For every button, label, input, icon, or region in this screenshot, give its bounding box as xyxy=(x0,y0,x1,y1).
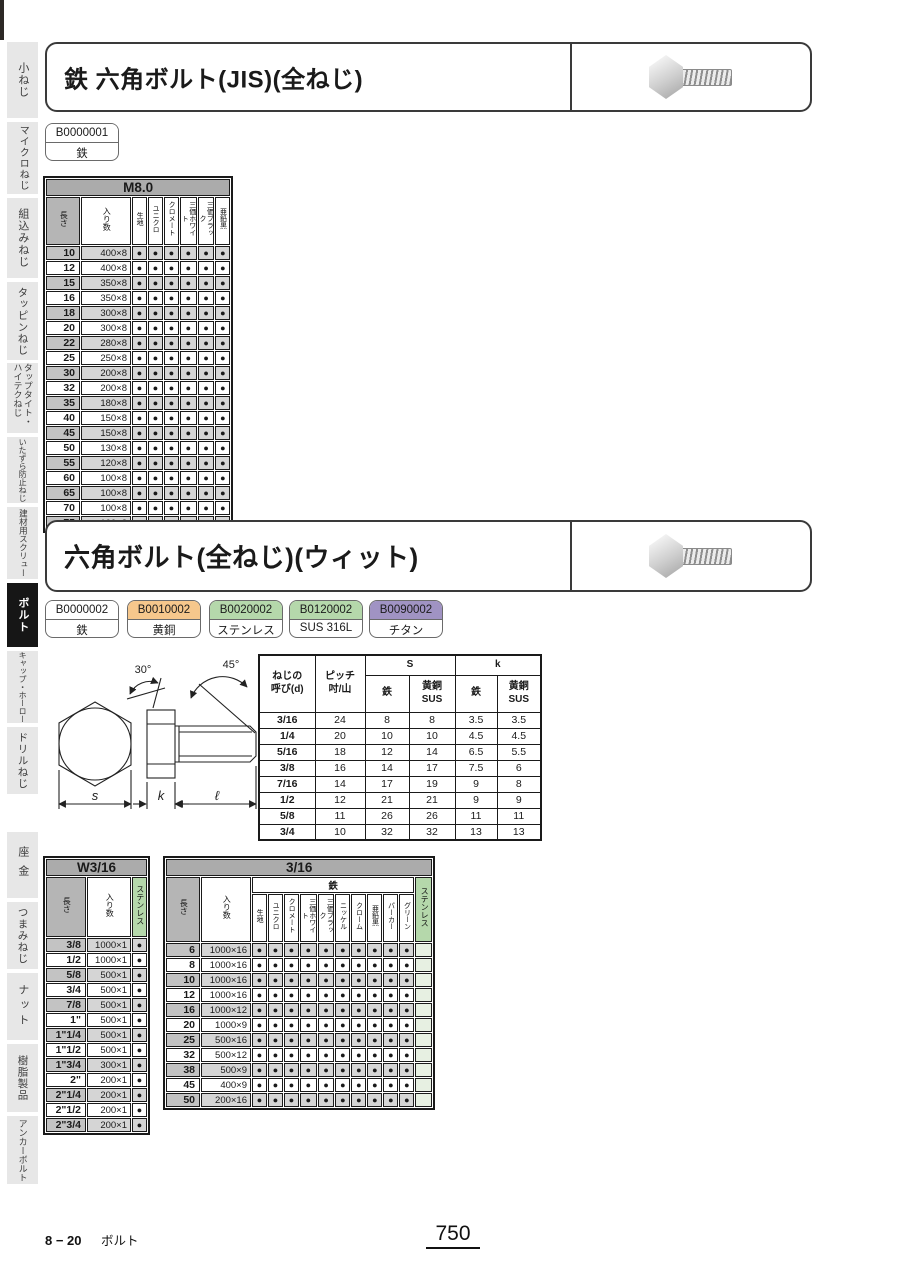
section1-header-box: 鉄 六角ボルト(JIS)(全ねじ) xyxy=(45,42,812,112)
product-code-tag: B0120002 SUS 316L xyxy=(289,600,363,638)
length-cell: 20 xyxy=(166,1018,200,1032)
finish-dot-cell: ● xyxy=(399,943,414,957)
table-row: 2"1/4200×1● xyxy=(46,1088,147,1102)
sus-dot-cell xyxy=(415,1093,432,1107)
table-row: 32200×8●●●●●● xyxy=(46,381,230,395)
section-title: 六角ボルト(全ねじ)(ウィット) xyxy=(64,538,419,575)
bolt-head-image xyxy=(649,55,683,99)
sidebar-item-label: 小ねじ xyxy=(16,62,29,98)
qty-cell: 1000×16 xyxy=(201,988,251,1002)
finish-dot-cell: ● xyxy=(300,1018,317,1032)
table-row: 45150×8●●●●●● xyxy=(46,426,230,440)
qty-cell: 500×1 xyxy=(87,998,131,1012)
finish-dot-cell: ● xyxy=(180,441,197,455)
page-title: 鉄 六角ボルト(JIS)(全ねじ) xyxy=(64,60,363,95)
divider xyxy=(570,44,572,110)
sidebar-item-micro-screws: マイクロねじ xyxy=(7,122,38,194)
finish-dot-cell: ● xyxy=(198,426,215,440)
sidebar-item-resin-products: 樹脂製品 xyxy=(7,1044,38,1112)
bolt-head-image xyxy=(649,534,683,578)
finish-dot-cell: ● xyxy=(268,1063,283,1077)
qty-cell: 1000×16 xyxy=(201,958,251,972)
qty-cell: 1000×16 xyxy=(201,943,251,957)
finish-dot-cell: ● xyxy=(367,1048,382,1062)
size-header: W3/16 xyxy=(46,859,147,876)
qty-cell: 1000×16 xyxy=(201,973,251,987)
length-cell: 45 xyxy=(46,426,80,440)
spec-value-cell: 9 xyxy=(455,776,497,792)
finish-dot-cell: ● xyxy=(198,411,215,425)
sidebar-item-label: いたずら防止ねじ xyxy=(18,438,27,502)
length-cell: 3/8 xyxy=(46,938,86,952)
finish-dot-cell: ● xyxy=(399,958,414,972)
table-row: 7/1614171998 xyxy=(259,776,541,792)
table-row: 2"1/2200×1● xyxy=(46,1103,147,1117)
qty-cell: 200×1 xyxy=(87,1118,131,1132)
finish-column-header: 亜鉛黒 xyxy=(215,197,230,245)
table-header-row: ねじの 呼び(d) ピッチ 吋/山 S k xyxy=(259,655,541,675)
qty-cell: 350×8 xyxy=(81,276,131,290)
thread-size-cell: 3/4 xyxy=(259,824,315,840)
finish-dot-cell: ● xyxy=(132,411,147,425)
sus-dot-cell: ● xyxy=(132,1073,147,1087)
product-code-tag: B0000001 鉄 xyxy=(45,123,119,161)
length-cell: 22 xyxy=(46,336,80,350)
stainless-column-header: ステンレス xyxy=(132,877,147,937)
finish-dot-cell: ● xyxy=(180,306,197,320)
table-row: 3/41032321313 xyxy=(259,824,541,840)
sidebar-item-construction-screws: 建材用スクリュー xyxy=(7,507,38,579)
chapter-code: 8 − 20 xyxy=(45,1233,82,1248)
material-label: ステンレス xyxy=(210,620,282,638)
finish-dot-cell: ● xyxy=(180,351,197,365)
finish-column-header: 三価ブラック xyxy=(318,894,335,942)
finish-dot-cell: ● xyxy=(148,276,163,290)
sus-dot-cell: ● xyxy=(132,1118,147,1132)
finish-dot-cell: ● xyxy=(132,366,147,380)
finish-dot-cell: ● xyxy=(284,1078,299,1092)
length-column-header: 長さ xyxy=(46,197,80,245)
finish-dot-cell: ● xyxy=(148,396,163,410)
finish-dot-cell: ● xyxy=(180,486,197,500)
finish-dot-cell: ● xyxy=(284,1003,299,1017)
qty-cell: 120×8 xyxy=(81,456,131,470)
s-iron-header: 鉄 xyxy=(365,675,409,712)
table-row: 2"3/4200×1● xyxy=(46,1118,147,1132)
sidebar-item-label: ドリルねじ xyxy=(16,732,28,790)
product-code: B0000001 xyxy=(46,124,118,143)
finish-dot-cell: ● xyxy=(180,396,197,410)
qty-cell: 500×9 xyxy=(201,1063,251,1077)
thread-size-cell: 5/8 xyxy=(259,808,315,824)
qty-cell: 200×1 xyxy=(87,1103,131,1117)
finish-dot-cell: ● xyxy=(180,426,197,440)
thread-size-cell: 1/2 xyxy=(259,792,315,808)
finish-dot-cell: ● xyxy=(252,1048,267,1062)
qty-cell: 200×1 xyxy=(87,1073,131,1087)
sus-dot-cell: ● xyxy=(132,938,147,952)
finish-dot-cell: ● xyxy=(148,351,163,365)
sus-dot-cell xyxy=(415,1078,432,1092)
finish-dot-cell: ● xyxy=(132,336,147,350)
spec-value-cell: 19 xyxy=(409,776,455,792)
table-row: 15350×8●●●●●● xyxy=(46,276,230,290)
spec-value-cell: 8 xyxy=(497,776,541,792)
finish-dot-cell: ● xyxy=(318,958,335,972)
qty-cell: 100×8 xyxy=(81,501,131,515)
spec-value-cell: 14 xyxy=(315,776,365,792)
finish-dot-cell: ● xyxy=(351,1078,366,1092)
sus-dot-cell xyxy=(415,988,432,1002)
finish-dot-cell: ● xyxy=(132,276,147,290)
spec-value-cell: 20 xyxy=(315,728,365,744)
finish-dot-cell: ● xyxy=(198,291,215,305)
spec-value-cell: 26 xyxy=(365,808,409,824)
finish-dot-cell: ● xyxy=(198,246,215,260)
length-cell: 2" xyxy=(46,1073,86,1087)
finish-dot-cell: ● xyxy=(164,291,179,305)
finish-dot-cell: ● xyxy=(383,1018,398,1032)
qty-cell: 1000×12 xyxy=(201,1003,251,1017)
spec-value-cell: 17 xyxy=(409,760,455,776)
table-header-row: 長さ 入り数 ステンレス xyxy=(46,877,147,937)
finish-dot-cell: ● xyxy=(132,426,147,440)
length-cell: 6 xyxy=(166,943,200,957)
spec-value-cell: 11 xyxy=(455,808,497,824)
finish-dot-cell: ● xyxy=(252,1033,267,1047)
finish-dot-cell: ● xyxy=(148,501,163,515)
sidebar-item-nuts: ナット xyxy=(7,973,38,1040)
finish-column-header: クロメート xyxy=(164,197,179,245)
finish-dot-cell: ● xyxy=(383,943,398,957)
finish-dot-cell: ● xyxy=(198,366,215,380)
table-row: 50130×8●●●●●● xyxy=(46,441,230,455)
finish-column-header: ニッケル xyxy=(335,894,350,942)
finish-dot-cell: ● xyxy=(383,958,398,972)
sus-dot-cell: ● xyxy=(132,1028,147,1042)
material-label: 鉄 xyxy=(46,143,118,161)
table-row: 45400×9●●●●●●●●●● xyxy=(166,1078,432,1092)
finish-dot-cell: ● xyxy=(164,306,179,320)
sidebar-item-label: ナット xyxy=(16,984,29,1029)
finish-dot-cell: ● xyxy=(318,1018,335,1032)
table-header-row: 長さ 入り数 生地ユニクロクロメート三価ホワイト三価ブラック亜鉛黒 xyxy=(46,197,230,245)
sus-dot-cell: ● xyxy=(132,1058,147,1072)
table-row: 1/212212199 xyxy=(259,792,541,808)
finish-dot-cell: ● xyxy=(198,381,215,395)
finish-dot-cell: ● xyxy=(164,426,179,440)
table-row: 3/1624883.53.5 xyxy=(259,712,541,728)
qty-cell: 300×8 xyxy=(81,306,131,320)
bolt-thread-image xyxy=(680,69,732,86)
bolt-technical-drawing: s k ℓ 30° 45° xyxy=(33,652,261,844)
finish-column-header: パーカー xyxy=(383,894,398,942)
finish-dot-cell: ● xyxy=(148,321,163,335)
finish-dot-cell: ● xyxy=(399,1048,414,1062)
sus-dot-cell xyxy=(415,1003,432,1017)
finish-dot-cell: ● xyxy=(215,486,230,500)
finish-dot-cell: ● xyxy=(367,1003,382,1017)
finish-dot-cell: ● xyxy=(215,351,230,365)
sus-dot-cell: ● xyxy=(132,983,147,997)
finish-dot-cell: ● xyxy=(148,486,163,500)
table-row: 50200×16●●●●●●●●●● xyxy=(166,1093,432,1107)
length-cell: 5/8 xyxy=(46,968,86,982)
size-header: 3/16 xyxy=(166,859,432,876)
length-cell: 2"1/2 xyxy=(46,1103,86,1117)
finish-dot-cell: ● xyxy=(300,943,317,957)
length-cell: 50 xyxy=(46,441,80,455)
finish-dot-cell: ● xyxy=(198,321,215,335)
finish-dot-cell: ● xyxy=(318,1063,335,1077)
finish-dot-cell: ● xyxy=(198,471,215,485)
spec-value-cell: 3.5 xyxy=(455,712,497,728)
spec-value-cell: 11 xyxy=(497,808,541,824)
finish-column-header: クローム xyxy=(351,894,366,942)
length-cell: 1" xyxy=(46,1013,86,1027)
table-row: 12400×8●●●●●● xyxy=(46,261,230,275)
finish-dot-cell: ● xyxy=(215,471,230,485)
length-cell: 35 xyxy=(46,396,80,410)
length-cell: 16 xyxy=(46,291,80,305)
finish-dot-cell: ● xyxy=(268,958,283,972)
finish-dot-cell: ● xyxy=(335,1078,350,1092)
finish-dot-cell: ● xyxy=(198,396,215,410)
sidebar-item-label: 樹脂製品 xyxy=(16,1055,28,1101)
finish-column-header: ユニクロ xyxy=(268,894,283,942)
table-row: 1/42010104.54.5 xyxy=(259,728,541,744)
iron-group-header: 鉄 xyxy=(252,877,414,893)
k-iron-header: 鉄 xyxy=(455,675,497,712)
finish-dot-cell: ● xyxy=(367,1093,382,1107)
qty-cell: 100×8 xyxy=(81,486,131,500)
sus-dot-cell xyxy=(415,958,432,972)
spec-value-cell: 8 xyxy=(409,712,455,728)
length-cell: 55 xyxy=(46,456,80,470)
hex-bolt-photo xyxy=(649,534,732,578)
sidebar-item-taptite: タップタイト・ハイテクねじ xyxy=(7,363,38,433)
hex-head-front-view xyxy=(59,702,131,786)
finish-dot-cell: ● xyxy=(268,1078,283,1092)
finish-dot-cell: ● xyxy=(399,973,414,987)
length-cell: 18 xyxy=(46,306,80,320)
t316-size-table: 3/16 長さ 入り数 鉄 ステンレス 生地ユニクロクロメート三価ホワイト三価ブ… xyxy=(163,856,435,1110)
finish-dot-cell: ● xyxy=(252,988,267,1002)
finish-dot-cell: ● xyxy=(198,276,215,290)
sidebar-item-label: 組込みねじ xyxy=(16,208,29,268)
finish-dot-cell: ● xyxy=(284,973,299,987)
finish-dot-cell: ● xyxy=(383,1048,398,1062)
finish-dot-cell: ● xyxy=(148,411,163,425)
finish-dot-cell: ● xyxy=(252,958,267,972)
bolt-shank-side-view xyxy=(175,726,256,762)
finish-dot-cell: ● xyxy=(335,1003,350,1017)
material-label: SUS 316L xyxy=(290,620,362,638)
product-code: B0020002 xyxy=(210,601,282,620)
qty-cell: 150×8 xyxy=(81,411,131,425)
sidebar-item-label: ボルト xyxy=(16,597,29,633)
table-row: 20300×8●●●●●● xyxy=(46,321,230,335)
finish-column-header: 亜鉛黒 xyxy=(367,894,382,942)
finish-dot-cell: ● xyxy=(148,471,163,485)
table-title-row: M8.0 xyxy=(46,179,230,196)
table-row: 3/81614177.56 xyxy=(259,760,541,776)
table-row: 65100×8●●●●●● xyxy=(46,486,230,500)
qty-cell: 1000×1 xyxy=(87,953,131,967)
dim-k-label: k xyxy=(158,788,166,803)
finish-column-header: 生地 xyxy=(132,197,147,245)
finish-dot-cell: ● xyxy=(335,1063,350,1077)
finish-dot-cell: ● xyxy=(383,1003,398,1017)
finish-dot-cell: ● xyxy=(215,261,230,275)
spec-value-cell: 26 xyxy=(409,808,455,824)
s-brass-header: 黄銅 SUS xyxy=(409,675,455,712)
finish-dot-cell: ● xyxy=(132,321,147,335)
finish-dot-cell: ● xyxy=(132,291,147,305)
finish-dot-cell: ● xyxy=(335,988,350,1002)
qty-cell: 500×1 xyxy=(87,1043,131,1057)
finish-dot-cell: ● xyxy=(300,1063,317,1077)
length-cell: 1/2 xyxy=(46,953,86,967)
finish-dot-cell: ● xyxy=(252,1078,267,1092)
finish-dot-cell: ● xyxy=(300,1093,317,1107)
table-row: 60100×8●●●●●● xyxy=(46,471,230,485)
finish-dot-cell: ● xyxy=(215,306,230,320)
finish-dot-cell: ● xyxy=(180,366,197,380)
table-row: 10400×8●●●●●● xyxy=(46,246,230,260)
spec-value-cell: 18 xyxy=(315,744,365,760)
finish-dot-cell: ● xyxy=(351,1018,366,1032)
finish-dot-cell: ● xyxy=(300,958,317,972)
sidebar-item-sems-screws: 組込みねじ xyxy=(7,198,38,278)
length-cell: 12 xyxy=(46,261,80,275)
finish-dot-cell: ● xyxy=(284,988,299,1002)
spec-value-cell: 10 xyxy=(409,728,455,744)
sidebar-item-label: 建材用スクリュー xyxy=(18,509,28,577)
sus-dot-cell: ● xyxy=(132,1103,147,1117)
finish-dot-cell: ● xyxy=(367,988,382,1002)
finish-dot-cell: ● xyxy=(335,1093,350,1107)
length-column-header: 長さ xyxy=(166,877,200,942)
finish-dot-cell: ● xyxy=(367,1018,382,1032)
finish-dot-cell: ● xyxy=(180,411,197,425)
length-cell: 16 xyxy=(166,1003,200,1017)
pitch-header: ピッチ 吋/山 xyxy=(315,655,365,712)
spec-value-cell: 6 xyxy=(497,760,541,776)
finish-dot-cell: ● xyxy=(335,958,350,972)
finish-dot-cell: ● xyxy=(164,321,179,335)
table-title-row: W3/16 xyxy=(46,859,147,876)
finish-dot-cell: ● xyxy=(132,486,147,500)
finish-dot-cell: ● xyxy=(383,1033,398,1047)
table-row: 81000×16●●●●●●●●●● xyxy=(166,958,432,972)
sidebar-item-anchor-bolts: アンカーボルト xyxy=(7,1116,38,1184)
table-row: 5/161812146.55.5 xyxy=(259,744,541,760)
s-group-header: S xyxy=(365,655,455,675)
spec-value-cell: 10 xyxy=(365,728,409,744)
product-code: B0010002 xyxy=(128,601,200,620)
m8-size-table: M8.0 長さ 入り数 生地ユニクロクロメート三価ホワイト三価ブラック亜鉛黒 1… xyxy=(43,176,233,533)
finish-dot-cell: ● xyxy=(215,396,230,410)
finish-dot-cell: ● xyxy=(268,988,283,1002)
finish-dot-cell: ● xyxy=(215,426,230,440)
finish-dot-cell: ● xyxy=(300,1033,317,1047)
finish-dot-cell: ● xyxy=(284,1033,299,1047)
spec-value-cell: 11 xyxy=(315,808,365,824)
finish-dot-cell: ● xyxy=(399,988,414,1002)
finish-dot-cell: ● xyxy=(132,471,147,485)
qty-cell: 180×8 xyxy=(81,396,131,410)
finish-dot-cell: ● xyxy=(164,441,179,455)
finish-dot-cell: ● xyxy=(164,501,179,515)
table-row: 16350×8●●●●●● xyxy=(46,291,230,305)
finish-dot-cell: ● xyxy=(351,1063,366,1077)
sus-dot-cell: ● xyxy=(132,953,147,967)
table-row: 101000×16●●●●●●●●●● xyxy=(166,973,432,987)
table-row: 35180×8●●●●●● xyxy=(46,396,230,410)
length-cell: 32 xyxy=(46,381,80,395)
table-row: 2"200×1● xyxy=(46,1073,147,1087)
finish-dot-cell: ● xyxy=(284,943,299,957)
finish-dot-cell: ● xyxy=(284,1063,299,1077)
finish-dot-cell: ● xyxy=(132,501,147,515)
finish-dot-cell: ● xyxy=(268,1018,283,1032)
finish-dot-cell: ● xyxy=(252,1003,267,1017)
bolt-thread-image xyxy=(680,548,732,565)
finish-dot-cell: ● xyxy=(148,261,163,275)
qty-cell: 250×8 xyxy=(81,351,131,365)
spec-value-cell: 9 xyxy=(497,792,541,808)
thread-size-cell: 3/16 xyxy=(259,712,315,728)
finish-dot-cell: ● xyxy=(335,973,350,987)
qty-cell: 200×8 xyxy=(81,381,131,395)
sidebar-item-label: アンカーボルト xyxy=(17,1119,27,1182)
finish-column-header: 三価ホワイト xyxy=(180,197,197,245)
finish-dot-cell: ● xyxy=(215,366,230,380)
finish-dot-cell: ● xyxy=(383,1093,398,1107)
finish-dot-cell: ● xyxy=(383,1063,398,1077)
table-row: 40150×8●●●●●● xyxy=(46,411,230,425)
sidebar-item-label: タップタイト・ハイテクねじ xyxy=(12,363,33,433)
spec-value-cell: 12 xyxy=(315,792,365,808)
page-number: 750 xyxy=(426,1222,480,1249)
sidebar-item-label: 座金 xyxy=(16,846,29,884)
table-row: 70100×8●●●●●● xyxy=(46,501,230,515)
finish-dot-cell: ● xyxy=(215,276,230,290)
k-brass-header: 黄銅 SUS xyxy=(497,675,541,712)
product-code-tag: B0010002 黄銅 xyxy=(127,600,201,638)
finish-dot-cell: ● xyxy=(268,943,283,957)
finish-dot-cell: ● xyxy=(215,501,230,515)
finish-dot-cell: ● xyxy=(132,381,147,395)
finish-dot-cell: ● xyxy=(399,1018,414,1032)
qty-column-header: 入り数 xyxy=(81,197,131,245)
finish-dot-cell: ● xyxy=(180,246,197,260)
sus-dot-cell: ● xyxy=(132,968,147,982)
table-row: 3/81000×1● xyxy=(46,938,147,952)
spec-value-cell: 24 xyxy=(315,712,365,728)
table-row: 18300×8●●●●●● xyxy=(46,306,230,320)
finish-dot-cell: ● xyxy=(198,306,215,320)
finish-dot-cell: ● xyxy=(132,441,147,455)
spec-value-cell: 7.5 xyxy=(455,760,497,776)
qty-cell: 500×1 xyxy=(87,968,131,982)
material-label: 黄銅 xyxy=(128,620,200,638)
finish-dot-cell: ● xyxy=(132,261,147,275)
material-label: チタン xyxy=(370,620,442,638)
k-group-header: k xyxy=(455,655,541,675)
length-cell: 38 xyxy=(166,1063,200,1077)
